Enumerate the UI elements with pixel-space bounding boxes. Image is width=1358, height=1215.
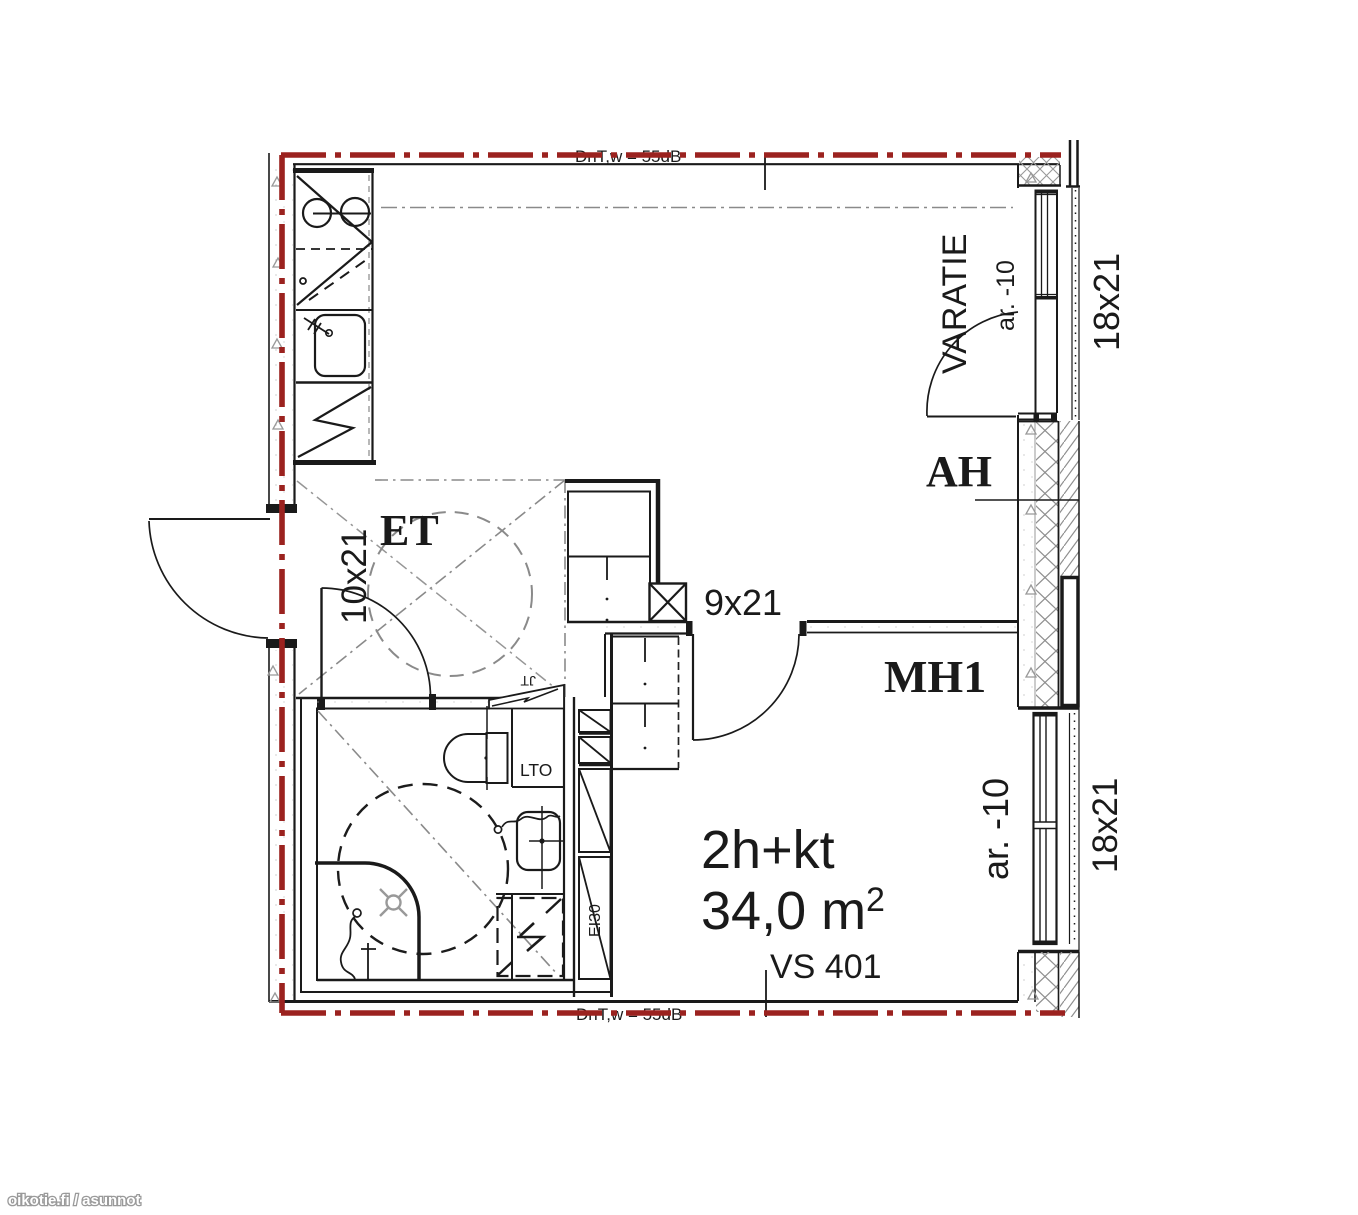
svg-text:MH1: MH1 <box>884 651 986 702</box>
svg-text:oikotie.fi / asunnot: oikotie.fi / asunnot <box>8 1192 141 1209</box>
svg-text:JT: JT <box>520 673 536 689</box>
svg-text:VS 401: VS 401 <box>770 948 882 986</box>
svg-text:AH: AH <box>926 447 992 496</box>
svg-text:2: 2 <box>866 881 885 919</box>
svg-text:18x21: 18x21 <box>1086 778 1125 873</box>
svg-text:18x21: 18x21 <box>1086 253 1127 351</box>
svg-text:10x21: 10x21 <box>335 529 374 624</box>
svg-text:LTO: LTO <box>520 760 552 780</box>
svg-text:ET: ET <box>380 506 439 555</box>
svg-text:2h+kt: 2h+kt <box>701 820 835 880</box>
svg-text:34,0 m: 34,0 m <box>701 881 866 941</box>
svg-text:EI30: EI30 <box>587 904 604 937</box>
svg-text:ar. -10: ar. -10 <box>992 260 1020 331</box>
svg-text:9x21: 9x21 <box>704 582 782 623</box>
svg-text:VARATIE: VARATIE <box>936 234 974 374</box>
svg-text:ar. -10: ar. -10 <box>975 778 1016 880</box>
